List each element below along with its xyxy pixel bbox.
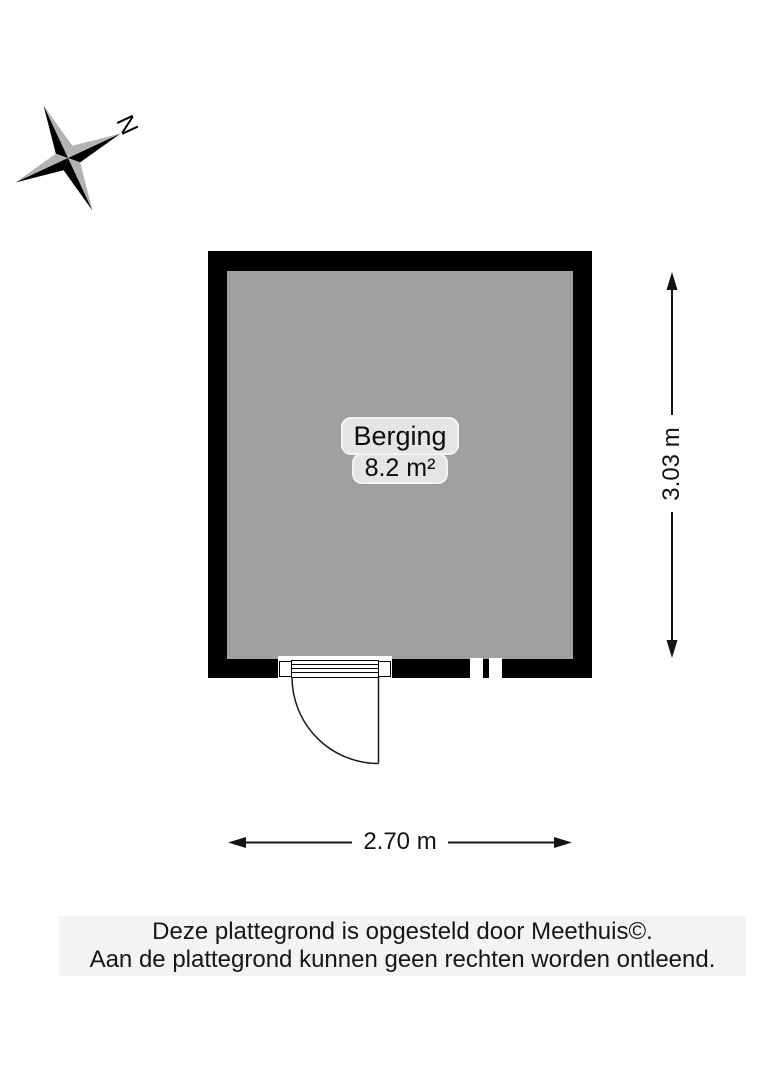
door-swing-arc	[278, 677, 398, 772]
room-area-label: 8.2 m²	[352, 453, 449, 484]
door-jamb-right	[378, 661, 391, 677]
width-dimension-label: 2.70 m	[352, 828, 448, 856]
wall-vent-slit	[489, 658, 502, 678]
wall-vent-slit	[470, 658, 483, 678]
door-sill	[291, 660, 379, 678]
floorplan-page: N Berging 8.2 m² 3.03 m 2.70 m Deze plat…	[0, 0, 764, 1080]
disclaimer: Deze plattegrond is opgesteld door Meeth…	[59, 916, 746, 976]
door-jamb-left	[279, 661, 292, 677]
compass-star-icon	[15, 105, 120, 210]
height-dimension-label: 3.03 m	[658, 416, 686, 512]
disclaimer-line-1: Deze plattegrond is opgesteld door Meeth…	[59, 918, 746, 946]
disclaimer-line-2: Aan de plattegrond kunnen geen rechten w…	[59, 946, 746, 974]
room-name-label: Berging	[341, 417, 458, 455]
room-label: Berging 8.2 m²	[208, 417, 592, 484]
compass-rose: N	[10, 95, 160, 245]
